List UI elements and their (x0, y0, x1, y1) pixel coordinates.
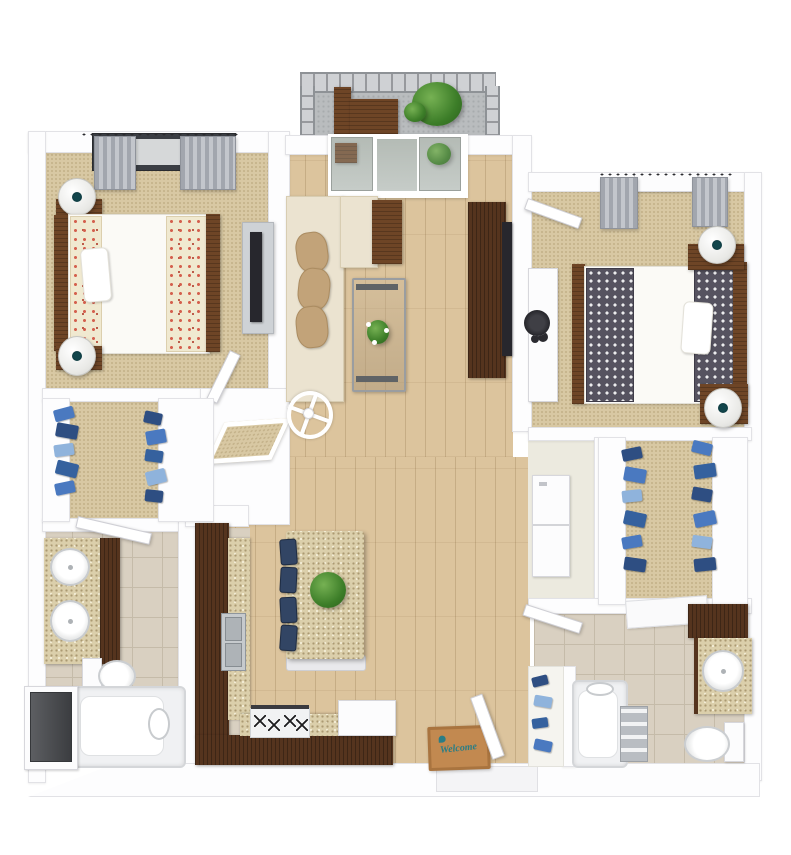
hanging-clothes (621, 489, 642, 503)
stove (250, 708, 310, 738)
washer-dryer-split (533, 524, 569, 526)
stove-burner (284, 715, 296, 727)
coffee-table-bar (356, 284, 398, 290)
bed-right-white-pillow (680, 301, 714, 355)
toilet-right-bowl (684, 726, 730, 762)
kitchen-sink (221, 613, 246, 671)
desk-chair (524, 310, 550, 336)
hanging-clothes (693, 557, 716, 572)
balcony-railing-right (485, 86, 500, 136)
table-lamp (58, 178, 96, 216)
wall-living-top-right (460, 135, 517, 155)
balcony-table (350, 99, 398, 134)
wall-living-top-left (285, 135, 333, 155)
bathroom-right-upper-cabinet (688, 604, 748, 638)
table-lamp (698, 226, 736, 264)
balcony-chair (334, 87, 351, 134)
bar-stool (279, 567, 297, 594)
sliding-glass-door (328, 134, 468, 198)
hanging-clothes (144, 489, 163, 503)
dishwasher (338, 700, 396, 736)
sink-basin (225, 617, 242, 641)
table-lamp (704, 388, 742, 428)
utility-closet-dark (30, 692, 72, 762)
bed-left-runner (166, 216, 210, 352)
hanging-clothes (144, 449, 163, 463)
bed-left-footboard (206, 214, 220, 352)
balcony-plant-small (404, 102, 426, 122)
bed-left-headboard (54, 215, 68, 351)
vanity-left-cabinet (100, 538, 120, 664)
bedroom-right-curtain-rod (598, 172, 732, 177)
bedroom-left-curtain-left (94, 136, 136, 190)
towel-shelf (620, 706, 648, 762)
tv-console (468, 202, 506, 378)
welcome-mat: Welcome (427, 725, 490, 771)
bedroom-right-curtain-right (692, 177, 728, 227)
closet-left-shelf-right (158, 398, 214, 522)
bed-right-runner (586, 268, 634, 402)
bar-stool (279, 538, 298, 565)
flower-white (372, 340, 377, 345)
side-table (372, 200, 402, 264)
fan-hub (303, 408, 314, 419)
dresser-tv (250, 232, 262, 322)
closet-right-shelf-right (712, 437, 748, 605)
tv (502, 222, 512, 356)
island-plant (310, 572, 346, 608)
bedroom-right-curtain-left (600, 177, 638, 229)
furniture-seen-through-glass (335, 143, 357, 163)
flower-white (366, 322, 371, 327)
bedroom-left-curtain-rod (80, 132, 238, 137)
bathtub-right-faucet (586, 682, 614, 696)
ceiling-fan (284, 388, 334, 440)
table-lamp (58, 336, 96, 376)
bedroom-left-curtain-right (180, 136, 236, 190)
floor-plan: Welcome (0, 0, 791, 855)
sink (50, 600, 90, 642)
sink-basin (225, 643, 242, 667)
flower-white (384, 328, 389, 333)
coffee-table-bar (356, 376, 398, 382)
hanging-clothes (691, 535, 712, 550)
bird-icon (439, 735, 446, 742)
glass-panel-middle (375, 137, 419, 193)
balcony (300, 72, 496, 136)
plant-seen-through-glass (427, 143, 451, 165)
stove-control-panel (251, 705, 309, 709)
kitchen-cabinet-bottom-run (195, 735, 393, 765)
coffee-table (352, 278, 406, 392)
balcony-railing-left (300, 86, 315, 136)
wall-bottom (28, 763, 760, 797)
stove-burner (268, 719, 280, 731)
balcony-railing (300, 72, 496, 93)
bathtub-right-basin (578, 690, 618, 758)
bathtub-left-faucet (148, 708, 170, 740)
closet-right-shelf-left (598, 437, 626, 605)
stove-burner (254, 715, 266, 727)
sink (702, 650, 744, 692)
washer-dryer-controls (539, 482, 547, 486)
stove-burner (296, 719, 308, 731)
stacked-washer-dryer (532, 475, 570, 577)
sink (50, 548, 90, 586)
bar-stool (279, 624, 298, 651)
bar-stool (279, 597, 297, 624)
welcome-mat-text: Welcome (440, 741, 478, 756)
bed-left-white-pillow (80, 247, 113, 303)
